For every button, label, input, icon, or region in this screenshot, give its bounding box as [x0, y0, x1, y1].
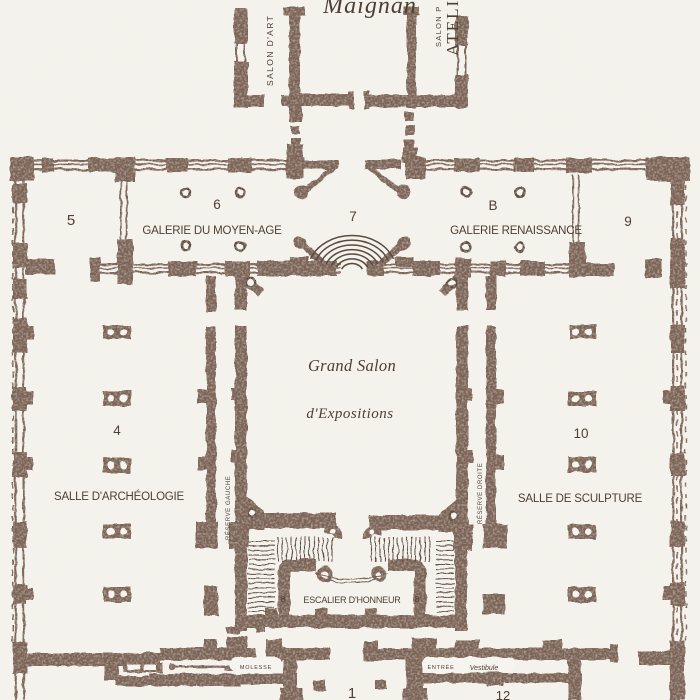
svg-text:Grand Salon: Grand Salon	[308, 356, 396, 375]
svg-text:MOLESSE: MOLESSE	[240, 665, 272, 671]
svg-text:RÉSERVE DROITE: RÉSERVE DROITE	[477, 463, 484, 524]
svg-text:GALERIE RENAISSANCE: GALERIE RENAISSANCE	[450, 225, 582, 237]
svg-text:1: 1	[348, 685, 356, 700]
svg-text:4: 4	[113, 423, 121, 438]
svg-text:SALON P: SALON P	[434, 5, 443, 47]
svg-text:10: 10	[573, 426, 588, 441]
svg-text:7: 7	[349, 209, 357, 224]
svg-text:8: 8	[415, 594, 420, 604]
svg-text:d'Expositions: d'Expositions	[306, 406, 393, 422]
svg-text:Maignan: Maignan	[322, 0, 417, 19]
svg-text:5: 5	[67, 212, 75, 229]
svg-text:B: B	[488, 198, 497, 213]
svg-text:6: 6	[213, 197, 221, 212]
svg-text:ESCALIER D'HONNEUR: ESCALIER D'HONNEUR	[303, 595, 401, 605]
svg-text:ATELIER: ATELIER	[443, 0, 462, 56]
svg-text:SALLE D'ARCHÉOLOGIE: SALLE D'ARCHÉOLOGIE	[54, 490, 185, 503]
svg-text:ENTRÉE: ENTRÉE	[427, 664, 454, 671]
svg-text:SALON D'ART: SALON D'ART	[265, 15, 275, 86]
svg-text:Vestibule: Vestibule	[470, 665, 499, 672]
svg-text:SALLE DE SCULPTURE: SALLE DE SCULPTURE	[518, 493, 643, 505]
svg-text:RÉSERVE GAUCHE: RÉSERVE GAUCHE	[225, 476, 232, 540]
svg-text:9: 9	[624, 214, 632, 229]
svg-text:8: 8	[281, 594, 286, 604]
svg-text:GALERIE DU MOYEN-AGE: GALERIE DU MOYEN-AGE	[142, 225, 282, 237]
svg-text:12: 12	[496, 688, 510, 700]
